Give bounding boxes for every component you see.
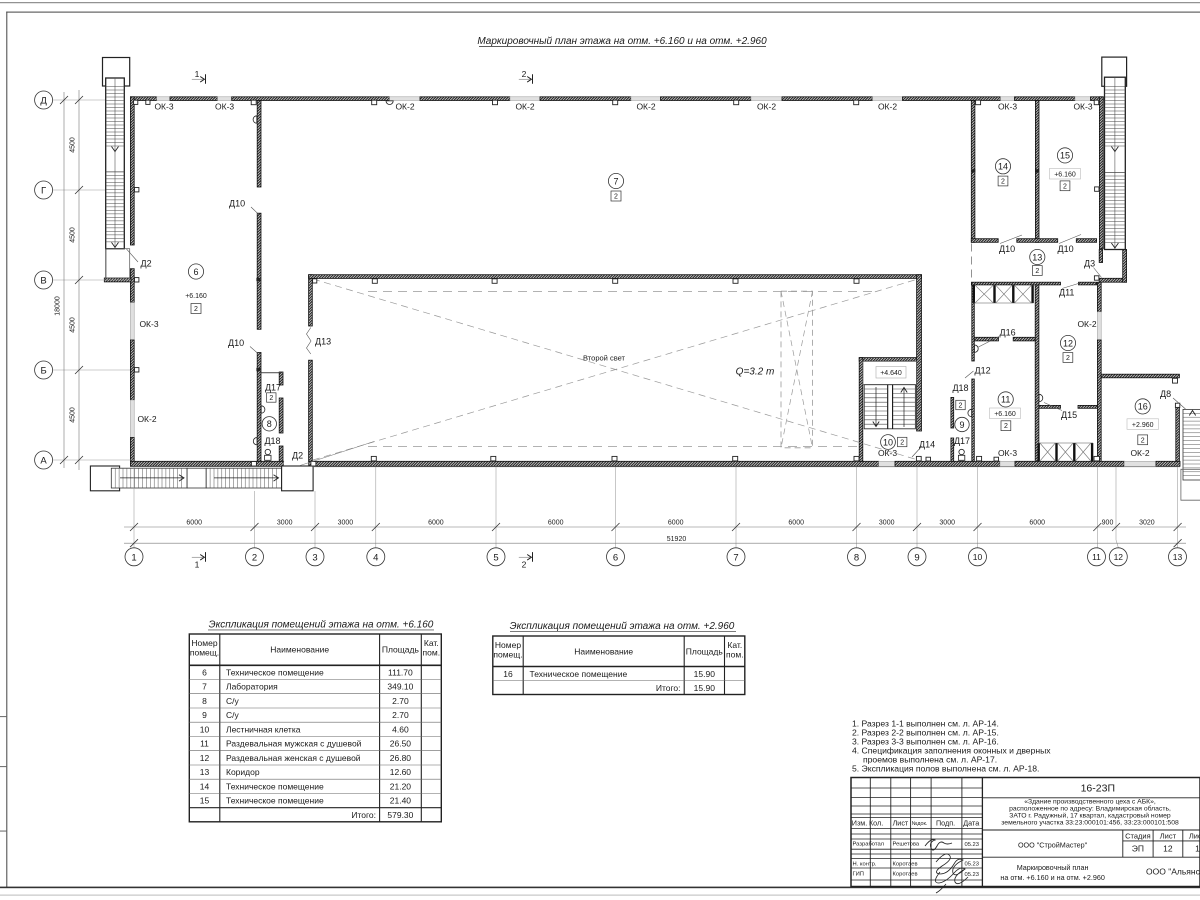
svg-text:1: 1 — [1195, 843, 1200, 853]
svg-text:9: 9 — [959, 420, 964, 430]
svg-text:9: 9 — [202, 710, 207, 720]
svg-text:14: 14 — [998, 162, 1008, 172]
svg-text:4500: 4500 — [70, 407, 77, 423]
svg-text:Итого:: Итого: — [351, 810, 376, 820]
svg-text:ЗАТО г. Радужный, 17 квартал,: ЗАТО г. Радужный, 17 квартал, кадастровы… — [1009, 811, 1171, 819]
svg-text:Д18: Д18 — [264, 436, 280, 446]
svg-text:на отм. +6.160 и на отм. +2.96: на отм. +6.160 и на отм. +2.960 — [1000, 873, 1104, 882]
svg-text:+2.960: +2.960 — [1132, 422, 1154, 429]
svg-text:Маркировочный план этажа на от: Маркировочный план этажа на отм. +6.160 … — [477, 36, 767, 47]
svg-text:Дата: Дата — [963, 819, 979, 828]
svg-text:Раздевальная женская с душевой: Раздевальная женская с душевой — [226, 753, 361, 763]
svg-text:+4.640: +4.640 — [880, 370, 902, 377]
svg-text:В: В — [40, 276, 46, 287]
svg-text:Д8: Д8 — [1160, 389, 1171, 399]
svg-text:ОК-2: ОК-2 — [757, 102, 776, 112]
svg-text:+6.160: +6.160 — [185, 293, 207, 300]
svg-text:Коротаев: Коротаев — [893, 872, 918, 878]
svg-text:1: 1 — [131, 552, 136, 563]
svg-text:3020: 3020 — [1139, 520, 1155, 527]
svg-text:2: 2 — [1035, 268, 1039, 275]
svg-text:Д15: Д15 — [1061, 410, 1077, 420]
svg-text:Лаборатория: Лаборатория — [226, 682, 278, 692]
svg-text:Техническое помещение: Техническое помещение — [530, 669, 628, 679]
svg-text:15: 15 — [200, 796, 210, 806]
svg-text:Решетова: Решетова — [893, 842, 920, 848]
svg-text:8: 8 — [854, 552, 859, 563]
svg-text:Номер: Номер — [191, 638, 217, 648]
svg-text:Площадь: Площадь — [382, 645, 420, 655]
svg-text:111.70: 111.70 — [388, 667, 413, 677]
svg-text:Подп.: Подп. — [936, 819, 955, 828]
svg-text:Д10: Д10 — [228, 338, 244, 348]
svg-text:16-23П: 16-23П — [1081, 782, 1115, 794]
svg-text:Лист: Лист — [1189, 831, 1200, 840]
svg-text:7: 7 — [202, 682, 207, 692]
svg-text:ОК-2: ОК-2 — [878, 102, 897, 112]
svg-text:2: 2 — [900, 440, 904, 447]
svg-text:2: 2 — [269, 395, 273, 402]
svg-text:4.60: 4.60 — [392, 724, 409, 734]
svg-text:Маркировочный план: Маркировочный план — [1017, 863, 1089, 872]
svg-text:Раздевальная мужская с душевой: Раздевальная мужская с душевой — [226, 739, 362, 749]
svg-text:№док.: №док. — [912, 821, 928, 827]
svg-text:2: 2 — [194, 306, 198, 313]
svg-text:5: 5 — [493, 552, 498, 563]
svg-text:6000: 6000 — [186, 520, 202, 527]
svg-text:Коротаев: Коротаев — [893, 861, 918, 867]
svg-text:пом.: пом. — [726, 650, 744, 660]
svg-text:Изм.: Изм. — [852, 819, 867, 828]
svg-text:Лист: Лист — [1160, 831, 1177, 840]
svg-text:А: А — [40, 456, 47, 467]
svg-text:2: 2 — [522, 69, 527, 79]
svg-text:ОК-3: ОК-3 — [1073, 102, 1092, 112]
svg-text:земельного участка 33:23:00010: земельного участка 33:23:000101:456, 33:… — [1001, 819, 1179, 826]
svg-text:Лестничная клетка: Лестничная клетка — [226, 724, 301, 734]
svg-text:4: 4 — [373, 552, 378, 563]
svg-text:Д10: Д10 — [1058, 244, 1074, 254]
svg-text:11: 11 — [1001, 395, 1010, 405]
svg-text:Экспликация помещений этажа на: Экспликация помещений этажа на отм. +2.9… — [510, 621, 735, 632]
svg-text:15.90: 15.90 — [694, 683, 716, 693]
svg-text:Н. контр.: Н. контр. — [853, 861, 877, 867]
svg-text:14: 14 — [200, 781, 210, 791]
svg-text:7: 7 — [733, 552, 738, 563]
svg-text:Д14: Д14 — [919, 440, 935, 450]
svg-text:26.50: 26.50 — [390, 739, 412, 749]
svg-text:13: 13 — [1032, 252, 1042, 262]
svg-text:4500: 4500 — [70, 317, 77, 333]
svg-text:Итого:: Итого: — [656, 683, 681, 693]
svg-text:ОК-2: ОК-2 — [1130, 448, 1149, 458]
svg-text:16: 16 — [1138, 402, 1148, 412]
svg-text:Кат.: Кат. — [424, 638, 439, 648]
svg-text:2: 2 — [1001, 179, 1005, 186]
svg-text:579.30: 579.30 — [387, 810, 413, 820]
svg-text:8: 8 — [202, 696, 207, 706]
svg-text:ОК-3: ОК-3 — [154, 102, 173, 112]
svg-text:ООО "Альянс-Строй": ООО "Альянс-Строй" — [1146, 866, 1200, 876]
svg-text:3000: 3000 — [338, 520, 354, 527]
svg-text:7: 7 — [613, 176, 618, 186]
svg-text:2: 2 — [1063, 183, 1067, 190]
svg-text:расположенное по адресу: Влади: расположенное по адресу: Владимирская об… — [1009, 804, 1171, 812]
svg-text:1: 1 — [195, 69, 200, 79]
svg-text:ОК-3: ОК-3 — [139, 319, 158, 329]
svg-text:11: 11 — [1092, 552, 1101, 562]
svg-text:ОК-2: ОК-2 — [1077, 319, 1096, 329]
svg-text:05.23: 05.23 — [965, 842, 980, 848]
svg-text:Г: Г — [41, 186, 46, 197]
svg-text:Д11: Д11 — [1059, 288, 1074, 298]
svg-text:ОК-3: ОК-3 — [998, 448, 1017, 458]
svg-text:3: 3 — [312, 552, 317, 563]
svg-text:13: 13 — [200, 767, 210, 777]
svg-text:Техническое помещение: Техническое помещение — [226, 796, 324, 806]
svg-text:«Здание производственного цеха: «Здание производственного цеха с АБК», — [1024, 798, 1156, 805]
svg-text:15.90: 15.90 — [694, 669, 716, 679]
svg-text:Д18: Д18 — [952, 383, 968, 393]
svg-text:05.23: 05.23 — [965, 862, 980, 868]
svg-text:Второй свет: Второй свет — [583, 354, 625, 363]
svg-text:Наименование: Наименование — [574, 647, 633, 657]
svg-text:помещ.: помещ. — [493, 650, 522, 660]
svg-text:ОК-2: ОК-2 — [395, 102, 414, 112]
svg-text:8: 8 — [267, 419, 272, 429]
svg-text:21.40: 21.40 — [390, 796, 412, 806]
svg-text:2.70: 2.70 — [392, 710, 409, 720]
svg-text:4500: 4500 — [70, 227, 77, 243]
svg-text:ОК-2: ОК-2 — [515, 102, 534, 112]
svg-text:Д17: Д17 — [954, 436, 970, 446]
svg-text:4500: 4500 — [70, 137, 77, 153]
svg-text:ГИП: ГИП — [853, 872, 864, 878]
svg-text:Д12: Д12 — [975, 366, 991, 376]
svg-text:18000: 18000 — [55, 296, 62, 316]
svg-text:Q=3.2 т: Q=3.2 т — [736, 367, 775, 378]
svg-text:ООО "СтройМастер": ООО "СтройМастер" — [1018, 840, 1088, 849]
svg-text:Экспликация помещений этажа на: Экспликация помещений этажа на отм. +6.1… — [209, 620, 434, 631]
svg-text:Д: Д — [40, 96, 47, 107]
svg-text:С/у: С/у — [226, 696, 240, 706]
svg-text:21.20: 21.20 — [390, 781, 412, 791]
svg-text:6000: 6000 — [1029, 520, 1045, 527]
svg-text:Техническое помещение: Техническое помещение — [226, 667, 324, 677]
svg-text:2: 2 — [1141, 437, 1145, 444]
svg-text:Д10: Д10 — [999, 244, 1015, 254]
svg-text:Кат.: Кат. — [727, 640, 742, 650]
svg-text:2: 2 — [1004, 423, 1008, 430]
svg-text:2: 2 — [1066, 355, 1070, 362]
svg-text:Стадия: Стадия — [1125, 831, 1151, 840]
svg-text:51920: 51920 — [667, 536, 687, 543]
svg-text:ОК-2: ОК-2 — [137, 414, 156, 424]
svg-text:13: 13 — [1173, 552, 1183, 562]
svg-text:Д10: Д10 — [229, 199, 245, 209]
svg-text:5. Экспликация полов выполнена: 5. Экспликация полов выполнена см. л. АР… — [852, 764, 1039, 774]
svg-text:6000: 6000 — [788, 520, 804, 527]
svg-text:6000: 6000 — [668, 520, 684, 527]
svg-text:Д2: Д2 — [141, 259, 152, 269]
svg-text:10: 10 — [883, 437, 893, 447]
svg-text:Лист: Лист — [893, 819, 909, 828]
svg-text:10: 10 — [200, 724, 210, 734]
svg-text:12: 12 — [1114, 552, 1124, 562]
svg-text:Д17: Д17 — [265, 383, 281, 393]
svg-text:9: 9 — [914, 552, 919, 563]
svg-text:6: 6 — [193, 267, 198, 277]
svg-text:12: 12 — [1063, 338, 1073, 348]
svg-text:Б: Б — [40, 366, 46, 377]
svg-text:3000: 3000 — [879, 520, 895, 527]
svg-text:2: 2 — [252, 552, 257, 563]
svg-text:Коридор: Коридор — [226, 767, 260, 777]
svg-text:Наименование: Наименование — [270, 645, 329, 655]
svg-text:6000: 6000 — [428, 520, 444, 527]
svg-text:3000: 3000 — [939, 520, 955, 527]
svg-text:Техническое помещение: Техническое помещение — [226, 781, 324, 791]
svg-text:2: 2 — [522, 560, 527, 570]
svg-text:Д16: Д16 — [1000, 328, 1016, 338]
svg-text:ОК-3: ОК-3 — [998, 102, 1017, 112]
svg-text:пом.: пом. — [423, 648, 441, 658]
svg-text:Д2: Д2 — [292, 451, 303, 461]
svg-text:ОК-2: ОК-2 — [636, 102, 655, 112]
svg-text:+6.160: +6.160 — [1054, 172, 1076, 179]
svg-text:помещ.: помещ. — [190, 648, 219, 658]
svg-text:05.23: 05.23 — [965, 872, 980, 878]
svg-text:349.10: 349.10 — [387, 682, 413, 692]
svg-text:6: 6 — [613, 552, 618, 563]
svg-text:Кол.: Кол. — [869, 819, 883, 828]
svg-text:15: 15 — [1060, 151, 1070, 161]
svg-text:Разработал: Разработал — [853, 842, 885, 848]
svg-text:12: 12 — [1163, 843, 1173, 853]
svg-text:11: 11 — [200, 739, 209, 749]
svg-text:С/у: С/у — [226, 710, 240, 720]
svg-text:6: 6 — [202, 667, 207, 677]
svg-text:2.70: 2.70 — [392, 696, 409, 706]
svg-text:3000: 3000 — [277, 520, 293, 527]
svg-text:12: 12 — [200, 753, 210, 763]
svg-text:2: 2 — [614, 194, 618, 201]
svg-text:12.60: 12.60 — [390, 767, 412, 777]
svg-text:Д3: Д3 — [1084, 259, 1095, 269]
svg-text:Д13: Д13 — [315, 337, 331, 347]
svg-text:+6.160: +6.160 — [994, 411, 1016, 418]
svg-text:10: 10 — [973, 552, 983, 562]
svg-text:2: 2 — [959, 403, 963, 410]
svg-text:26.80: 26.80 — [390, 753, 412, 763]
svg-text:Номер: Номер — [495, 640, 521, 650]
svg-text:1: 1 — [195, 560, 200, 570]
svg-text:ОК-3: ОК-3 — [215, 102, 234, 112]
svg-text:6000: 6000 — [548, 520, 564, 527]
svg-text:16: 16 — [503, 669, 513, 679]
svg-text:ЭП: ЭП — [1132, 843, 1144, 853]
svg-text:900: 900 — [1102, 520, 1114, 527]
svg-text:Площадь: Площадь — [686, 647, 724, 657]
